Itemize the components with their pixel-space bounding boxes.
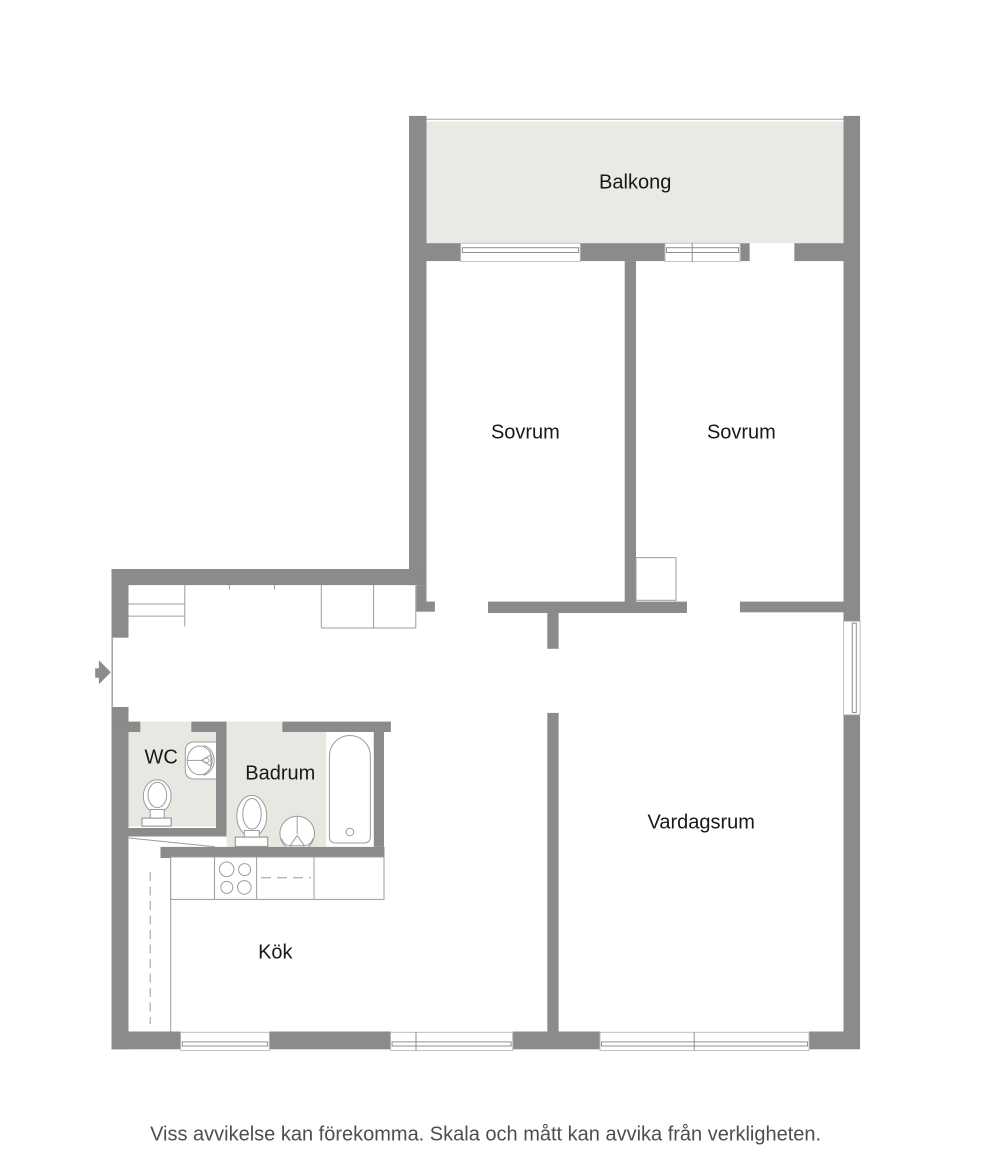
svg-text:Kök: Kök — [258, 942, 293, 964]
svg-text:Badrum: Badrum — [245, 763, 315, 785]
svg-text:Sovrum: Sovrum — [707, 422, 776, 444]
svg-text:Sovrum: Sovrum — [491, 422, 560, 444]
svg-text:Vardagsrum: Vardagsrum — [647, 812, 754, 834]
svg-text:WC: WC — [145, 746, 178, 768]
svg-text:Balkong: Balkong — [599, 172, 671, 194]
svg-text:Viss avvikelse kan förekomma.: Viss avvikelse kan förekomma. Skala och … — [150, 1123, 821, 1145]
